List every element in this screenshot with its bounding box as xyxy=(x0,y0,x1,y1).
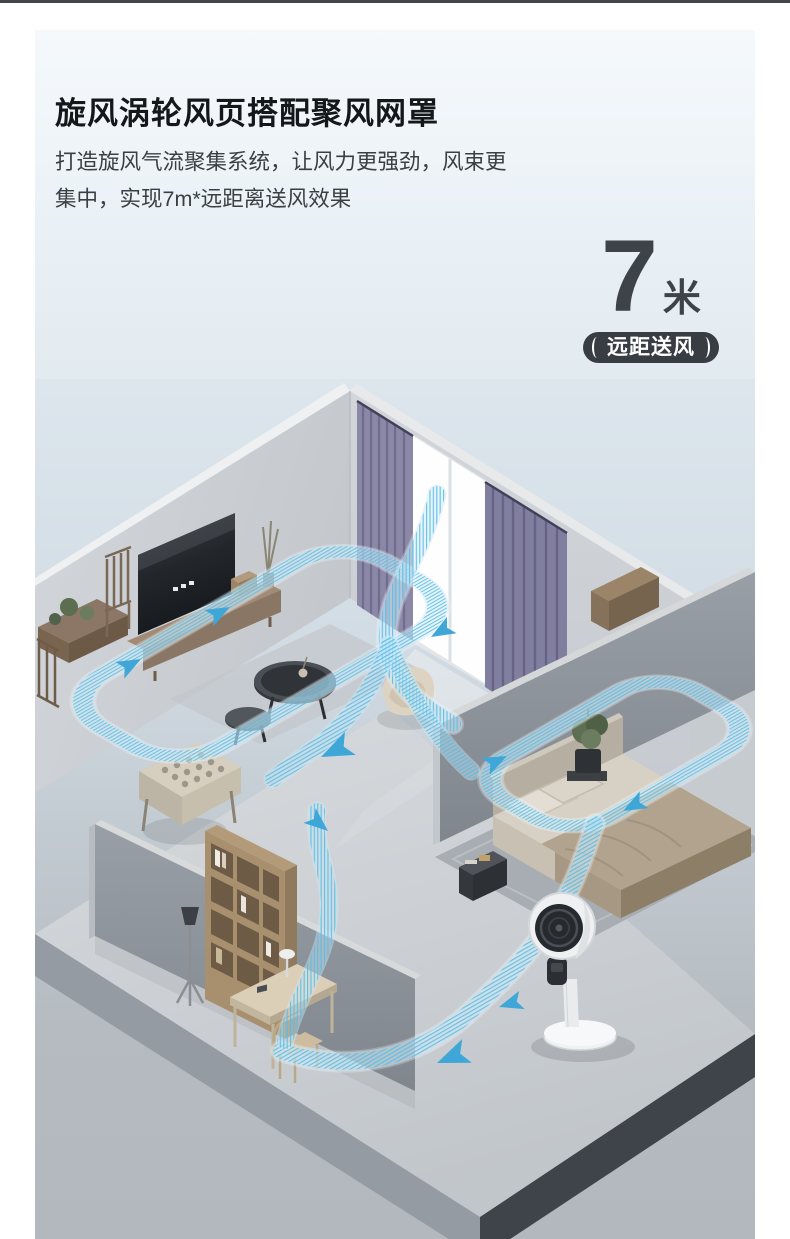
scene-illustration xyxy=(35,379,755,1239)
badge-left-arc-icon xyxy=(592,337,602,358)
description-line-1: 打造旋风气流聚集系统，让风力更强劲，风束更 xyxy=(55,144,507,181)
description-line-2: 集中，实现7m*远距离送风效果 xyxy=(55,181,507,218)
page-title: 旋风涡轮风页搭配聚风网罩 xyxy=(55,88,439,133)
fan-control-display xyxy=(547,957,567,985)
badge-label: 远距送风 xyxy=(607,332,695,363)
top-divider-strip xyxy=(0,0,790,3)
distance-highlight: 7 米 远距送风 xyxy=(583,230,719,363)
feature-panel: 旋风涡轮风页搭配聚风网罩 打造旋风气流聚集系统，让风力更强劲，风束更 集中，实现… xyxy=(35,30,755,1239)
feature-description: 打造旋风气流聚集系统，让风力更强劲，风束更 集中，实现7m*远距离送风效果 xyxy=(55,144,507,218)
distance-unit: 米 xyxy=(663,267,701,322)
distance-badge: 远距送风 xyxy=(583,332,719,363)
badge-right-arc-icon xyxy=(700,337,710,358)
distance-value-line: 7 米 xyxy=(583,230,719,324)
distance-value: 7 xyxy=(601,230,658,324)
